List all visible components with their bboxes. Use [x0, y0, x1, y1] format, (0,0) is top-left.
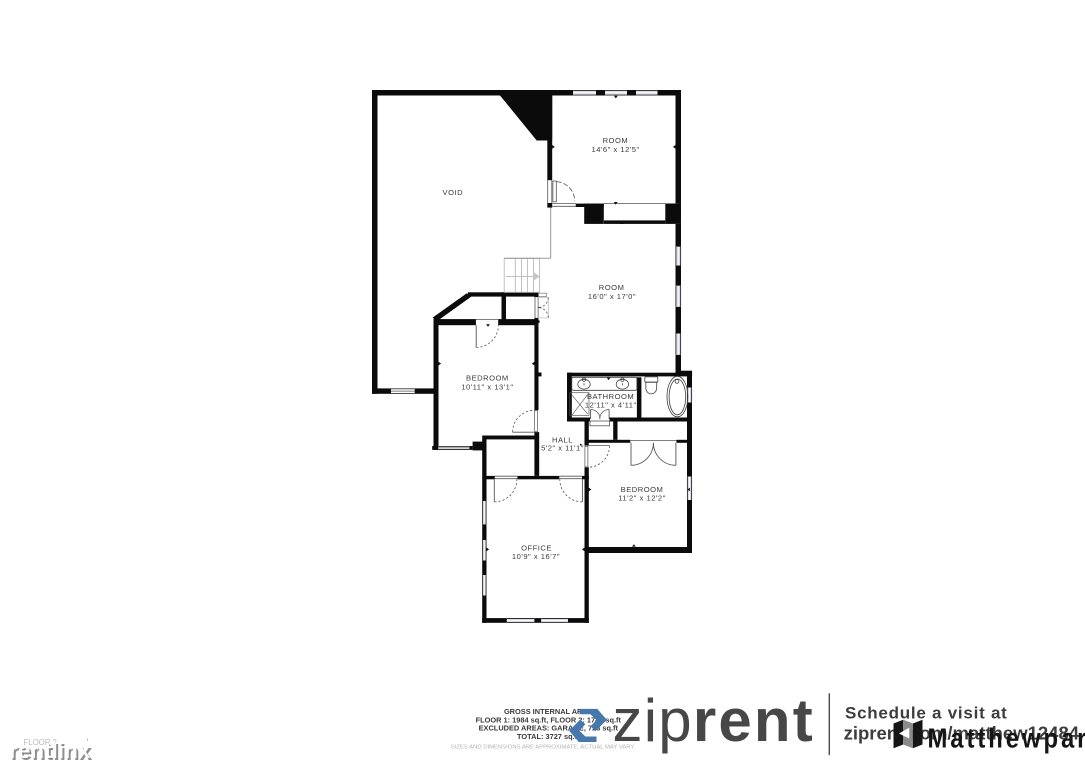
svg-text:': '	[87, 738, 89, 749]
svg-text:14'6" x 12'5": 14'6" x 12'5"	[592, 145, 640, 154]
svg-text:SIZES AND DIMENSIONS ARE APPRO: SIZES AND DIMENSIONS ARE APPROXIMATE, AC…	[451, 745, 636, 751]
svg-text:VOID: VOID	[443, 188, 464, 197]
svg-text:ROOM: ROOM	[603, 136, 629, 145]
svg-text:ziprent: ziprent	[613, 687, 815, 754]
svg-text:Matthewpar: Matthewpar	[928, 722, 1085, 754]
svg-text:Schedule a visit at: Schedule a visit at	[845, 704, 1008, 723]
svg-text:rentlinx: rentlinx	[9, 738, 91, 763]
svg-text:10'9" x 16'7": 10'9" x 16'7"	[512, 552, 560, 561]
svg-text:ROOM: ROOM	[599, 283, 625, 292]
svg-text:BEDROOM: BEDROOM	[466, 374, 509, 383]
svg-text:11'2" x 12'2": 11'2" x 12'2"	[618, 494, 666, 503]
svg-text:TOTAL: 3727 sq.ft: TOTAL: 3727 sq.ft	[517, 732, 580, 741]
svg-text:16'0" x 17'0": 16'0" x 17'0"	[588, 292, 636, 301]
svg-text:10'11" x 13'1": 10'11" x 13'1"	[461, 383, 513, 392]
svg-text:5'2" x 11'1": 5'2" x 11'1"	[541, 443, 584, 452]
svg-text:12'11" x 4'11": 12'11" x 4'11"	[585, 400, 637, 409]
